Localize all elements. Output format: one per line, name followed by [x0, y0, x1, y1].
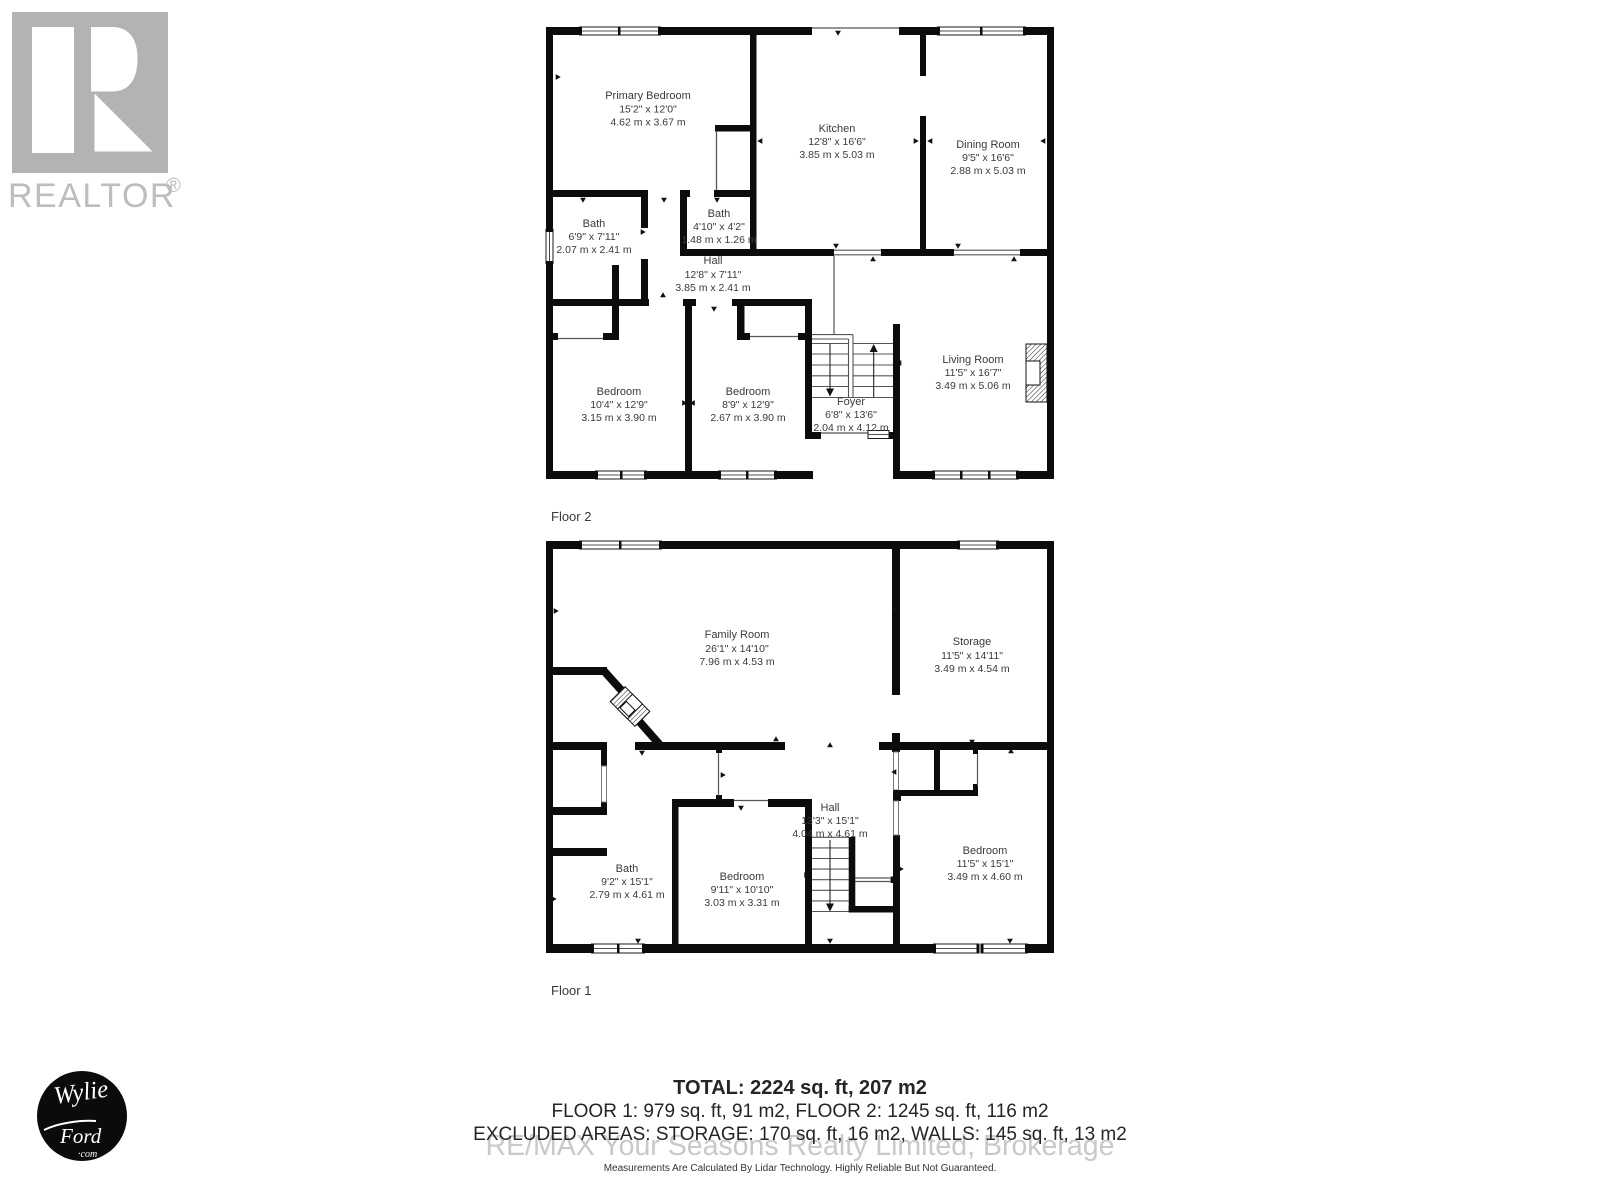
- svg-text:2.88 m x 5.03 m: 2.88 m x 5.03 m: [950, 165, 1026, 177]
- svg-text:3.49 m x 4.54 m: 3.49 m x 4.54 m: [934, 663, 1010, 675]
- svg-text:9'11" x 10'10": 9'11" x 10'10": [711, 884, 774, 896]
- svg-text:2.79 m x 4.61 m: 2.79 m x 4.61 m: [589, 889, 665, 901]
- svg-text:Bedroom: Bedroom: [963, 845, 1008, 857]
- svg-text:7.96 m x 4.53 m: 7.96 m x 4.53 m: [699, 656, 775, 668]
- svg-text:4.62 m x 3.67 m: 4.62 m x 3.67 m: [610, 117, 686, 129]
- svg-text:3.15 m x 3.90 m: 3.15 m x 3.90 m: [581, 412, 657, 424]
- svg-text:REALTOR: REALTOR: [8, 177, 176, 215]
- svg-text:Bath: Bath: [583, 218, 606, 230]
- svg-text:1.48 m x 1.26 m: 1.48 m x 1.26 m: [681, 234, 757, 246]
- svg-text:Family Room: Family Room: [705, 629, 770, 641]
- svg-text:11'5" x 14'11": 11'5" x 14'11": [941, 650, 1003, 662]
- svg-text:TOTAL: 2224 sq. ft, 207 m2: TOTAL: 2224 sq. ft, 207 m2: [673, 1077, 927, 1099]
- svg-text:Dining Room: Dining Room: [956, 139, 1020, 151]
- svg-text:Primary Bedroom: Primary Bedroom: [605, 90, 691, 102]
- svg-text:15'2" x 12'0": 15'2" x 12'0": [619, 104, 677, 116]
- svg-text:9'2" x 15'1": 9'2" x 15'1": [601, 876, 653, 888]
- svg-text:11'5" x 15'1": 11'5" x 15'1": [957, 858, 1014, 870]
- svg-text:Storage: Storage: [953, 636, 992, 648]
- svg-text:6'8" x 13'6": 6'8" x 13'6": [825, 409, 877, 421]
- svg-text:4.04 m x 4.61 m: 4.04 m x 4.61 m: [792, 828, 868, 840]
- svg-text:3.85 m x 5.03 m: 3.85 m x 5.03 m: [799, 149, 875, 161]
- svg-text:6'9" x 7'11": 6'9" x 7'11": [569, 231, 620, 243]
- svg-text:12'8" x 16'6": 12'8" x 16'6": [808, 136, 866, 148]
- svg-text:3.49 m x 5.06 m: 3.49 m x 5.06 m: [935, 380, 1011, 392]
- svg-text:13'3" x 15'1": 13'3" x 15'1": [801, 815, 859, 827]
- svg-text:Bedroom: Bedroom: [726, 386, 771, 398]
- svg-text:Floor 2: Floor 2: [551, 509, 591, 524]
- svg-text:Measurements Are Calculated By: Measurements Are Calculated By Lidar Tec…: [604, 1163, 997, 1174]
- svg-text:2.04 m x 4.12 m: 2.04 m x 4.12 m: [813, 422, 889, 434]
- svg-text:10'4" x 12'9": 10'4" x 12'9": [590, 399, 648, 411]
- svg-text:®: ®: [166, 175, 181, 197]
- svg-text:3.03 m x 3.31 m: 3.03 m x 3.31 m: [704, 897, 780, 909]
- svg-text:Living Room: Living Room: [942, 354, 1003, 366]
- svg-text:EXCLUDED AREAS: STORAGE: 170 s: EXCLUDED AREAS: STORAGE: 170 sq. ft, 16 …: [473, 1124, 1127, 1145]
- svg-text:Kitchen: Kitchen: [819, 123, 856, 135]
- svg-text:11'5" x 16'7": 11'5" x 16'7": [945, 367, 1002, 379]
- svg-text:Bedroom: Bedroom: [720, 871, 765, 883]
- svg-text:Hall: Hall: [704, 255, 723, 267]
- svg-text:2.67 m x 3.90 m: 2.67 m x 3.90 m: [710, 412, 786, 424]
- svg-text:Hall: Hall: [821, 802, 840, 814]
- svg-text:Foyer: Foyer: [837, 396, 865, 408]
- svg-text:Ford: Ford: [59, 1124, 102, 1148]
- svg-text:·com: ·com: [78, 1149, 97, 1160]
- svg-text:26'1" x 14'10": 26'1" x 14'10": [705, 643, 769, 655]
- svg-text:Floor 1: Floor 1: [551, 983, 591, 998]
- svg-text:Bath: Bath: [708, 208, 731, 220]
- svg-text:Bath: Bath: [616, 863, 639, 875]
- svg-text:12'8" x 7'11": 12'8" x 7'11": [685, 269, 742, 281]
- svg-text:Bedroom: Bedroom: [597, 386, 642, 398]
- svg-text:9'5" x 16'6": 9'5" x 16'6": [962, 152, 1014, 164]
- svg-text:3.85 m x 2.41 m: 3.85 m x 2.41 m: [675, 282, 751, 294]
- svg-text:3.49 m x 4.60 m: 3.49 m x 4.60 m: [947, 871, 1023, 883]
- svg-text:FLOOR 1: 979 sq. ft, 91 m2, FL: FLOOR 1: 979 sq. ft, 91 m2, FLOOR 2: 124…: [551, 1101, 1048, 1122]
- svg-text:8'9" x 12'9": 8'9" x 12'9": [722, 399, 774, 411]
- svg-text:4'10" x 4'2": 4'10" x 4'2": [693, 221, 745, 233]
- svg-text:2.07 m x 2.41 m: 2.07 m x 2.41 m: [556, 244, 632, 256]
